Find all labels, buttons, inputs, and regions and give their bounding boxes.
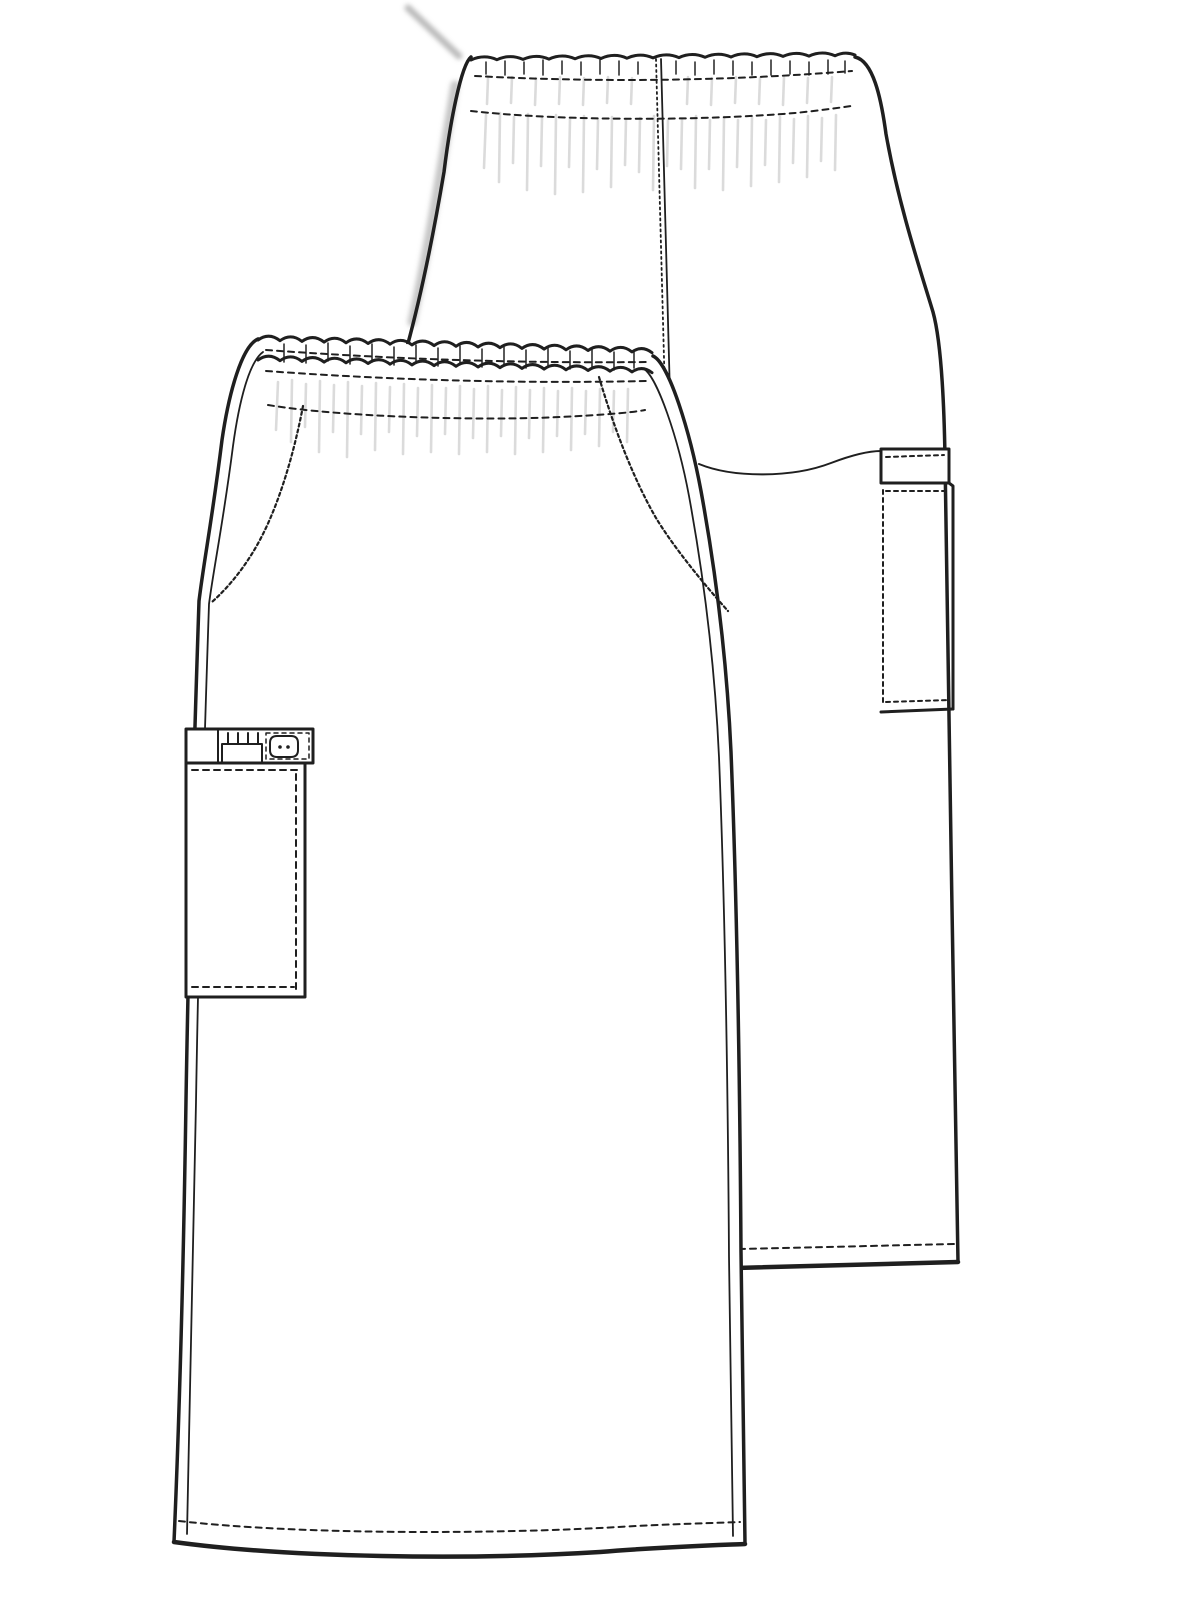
flat-sketch-canvas: [0, 0, 1200, 1600]
back-side-pocket-band: [881, 449, 949, 483]
front-cargo-pocket: [186, 729, 313, 997]
cargo-pocket-button: [270, 736, 298, 757]
cargo-pocket-body: [186, 763, 305, 997]
flat-sketch-stage: [0, 0, 1200, 1600]
